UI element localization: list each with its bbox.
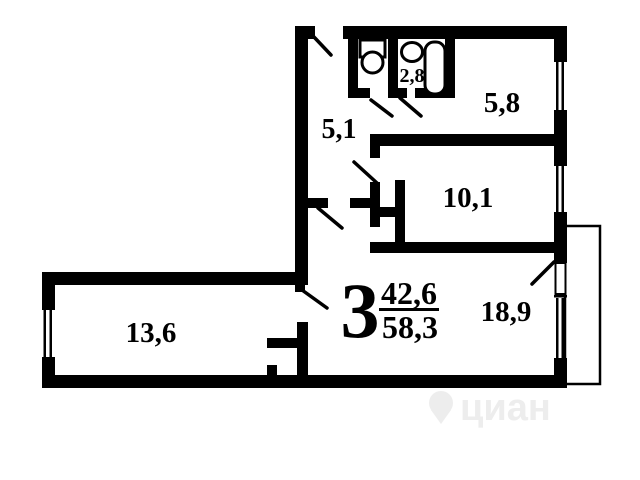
bathtub — [425, 42, 445, 94]
floor-plan-drawing: 2,8 5,1 5,8 10,1 18,9 13,6 3 42,6 58,3 ц… — [0, 0, 640, 480]
kitchen-area-label: 5,8 — [484, 87, 520, 119]
top-wall — [343, 26, 567, 39]
room-13-6-area-label: 13,6 — [126, 317, 177, 349]
window-18-9-line-outer — [562, 298, 565, 358]
room-13-6-door-swing — [302, 290, 327, 308]
window-10-1-line-inner — [556, 166, 559, 212]
bedroom-area-label: 10,1 — [443, 182, 494, 214]
right-wall-bedroom-bottom — [554, 212, 567, 263]
window-13-6-line-outer — [44, 310, 47, 357]
area-fraction-line — [379, 308, 439, 311]
corridor-area-label: 5,1 — [322, 114, 357, 145]
wc-bath-divider-wall — [388, 38, 398, 98]
balcony-outline — [565, 226, 600, 384]
wardrobe-bottom-stub — [267, 365, 277, 375]
wc-left-wall — [348, 38, 358, 98]
wc-door-swing — [371, 100, 392, 116]
corridor-stub-right — [350, 198, 370, 208]
bedroom-door-swing — [354, 162, 377, 183]
window-18-9-line-inner — [556, 298, 559, 358]
kitchen-bottom-wall — [370, 134, 567, 146]
apartment-summary: 3 42,6 58,3 — [341, 267, 440, 354]
balcony-door-sill — [554, 295, 567, 298]
corridor-door-swing — [318, 208, 342, 228]
room-labels: 2,8 5,1 5,8 10,1 18,9 13,6 — [126, 65, 532, 349]
sink — [402, 43, 423, 62]
balcony — [565, 226, 600, 384]
cian-pin-icon — [429, 391, 453, 424]
toilet-bowl — [362, 52, 383, 73]
wardrobe-right-wall — [297, 322, 308, 375]
bedroom-left-wall — [370, 182, 380, 227]
wc-left-wall-foot — [358, 88, 370, 98]
window-13-6-line-inner — [50, 310, 53, 357]
total-area-label: 58,3 — [382, 309, 438, 345]
room-13-6-left-wall-lower — [42, 357, 55, 388]
living-room-area-label: 18,9 — [481, 296, 532, 328]
closet-connector-wall — [380, 207, 395, 217]
bedroom-bottom-wall — [370, 242, 567, 253]
living-area-label: 42,6 — [381, 275, 437, 311]
floor-plan-page: 2,8 5,1 5,8 10,1 18,9 13,6 3 42,6 58,3 ц… — [0, 0, 640, 480]
window-10-1-line-outer — [562, 166, 565, 212]
balcony-door-swing — [532, 262, 554, 284]
closet-inner-wall — [395, 180, 405, 242]
wardrobe-top-wall — [267, 338, 297, 348]
left-wall — [295, 26, 308, 284]
watermark: циан — [429, 387, 551, 429]
balcony-door — [554, 263, 567, 298]
balcony-door-leaf — [556, 263, 566, 294]
bathroom-area-label: 2,8 — [400, 65, 425, 87]
window-kitchen-line-inner — [556, 62, 559, 110]
rooms-count-label: 3 — [341, 267, 380, 354]
window-kitchen-line-outer — [562, 62, 565, 110]
right-wall-kitchen-top — [554, 26, 567, 62]
entrance-door-swing — [314, 37, 331, 55]
watermark-text: циан — [460, 387, 551, 429]
bedroom-door-stub — [370, 146, 380, 158]
room-13-6-left-wall-upper — [42, 272, 55, 310]
pin-point — [431, 410, 451, 424]
bath-door-swing — [400, 98, 421, 116]
room-13-6-top-wall — [42, 272, 308, 285]
